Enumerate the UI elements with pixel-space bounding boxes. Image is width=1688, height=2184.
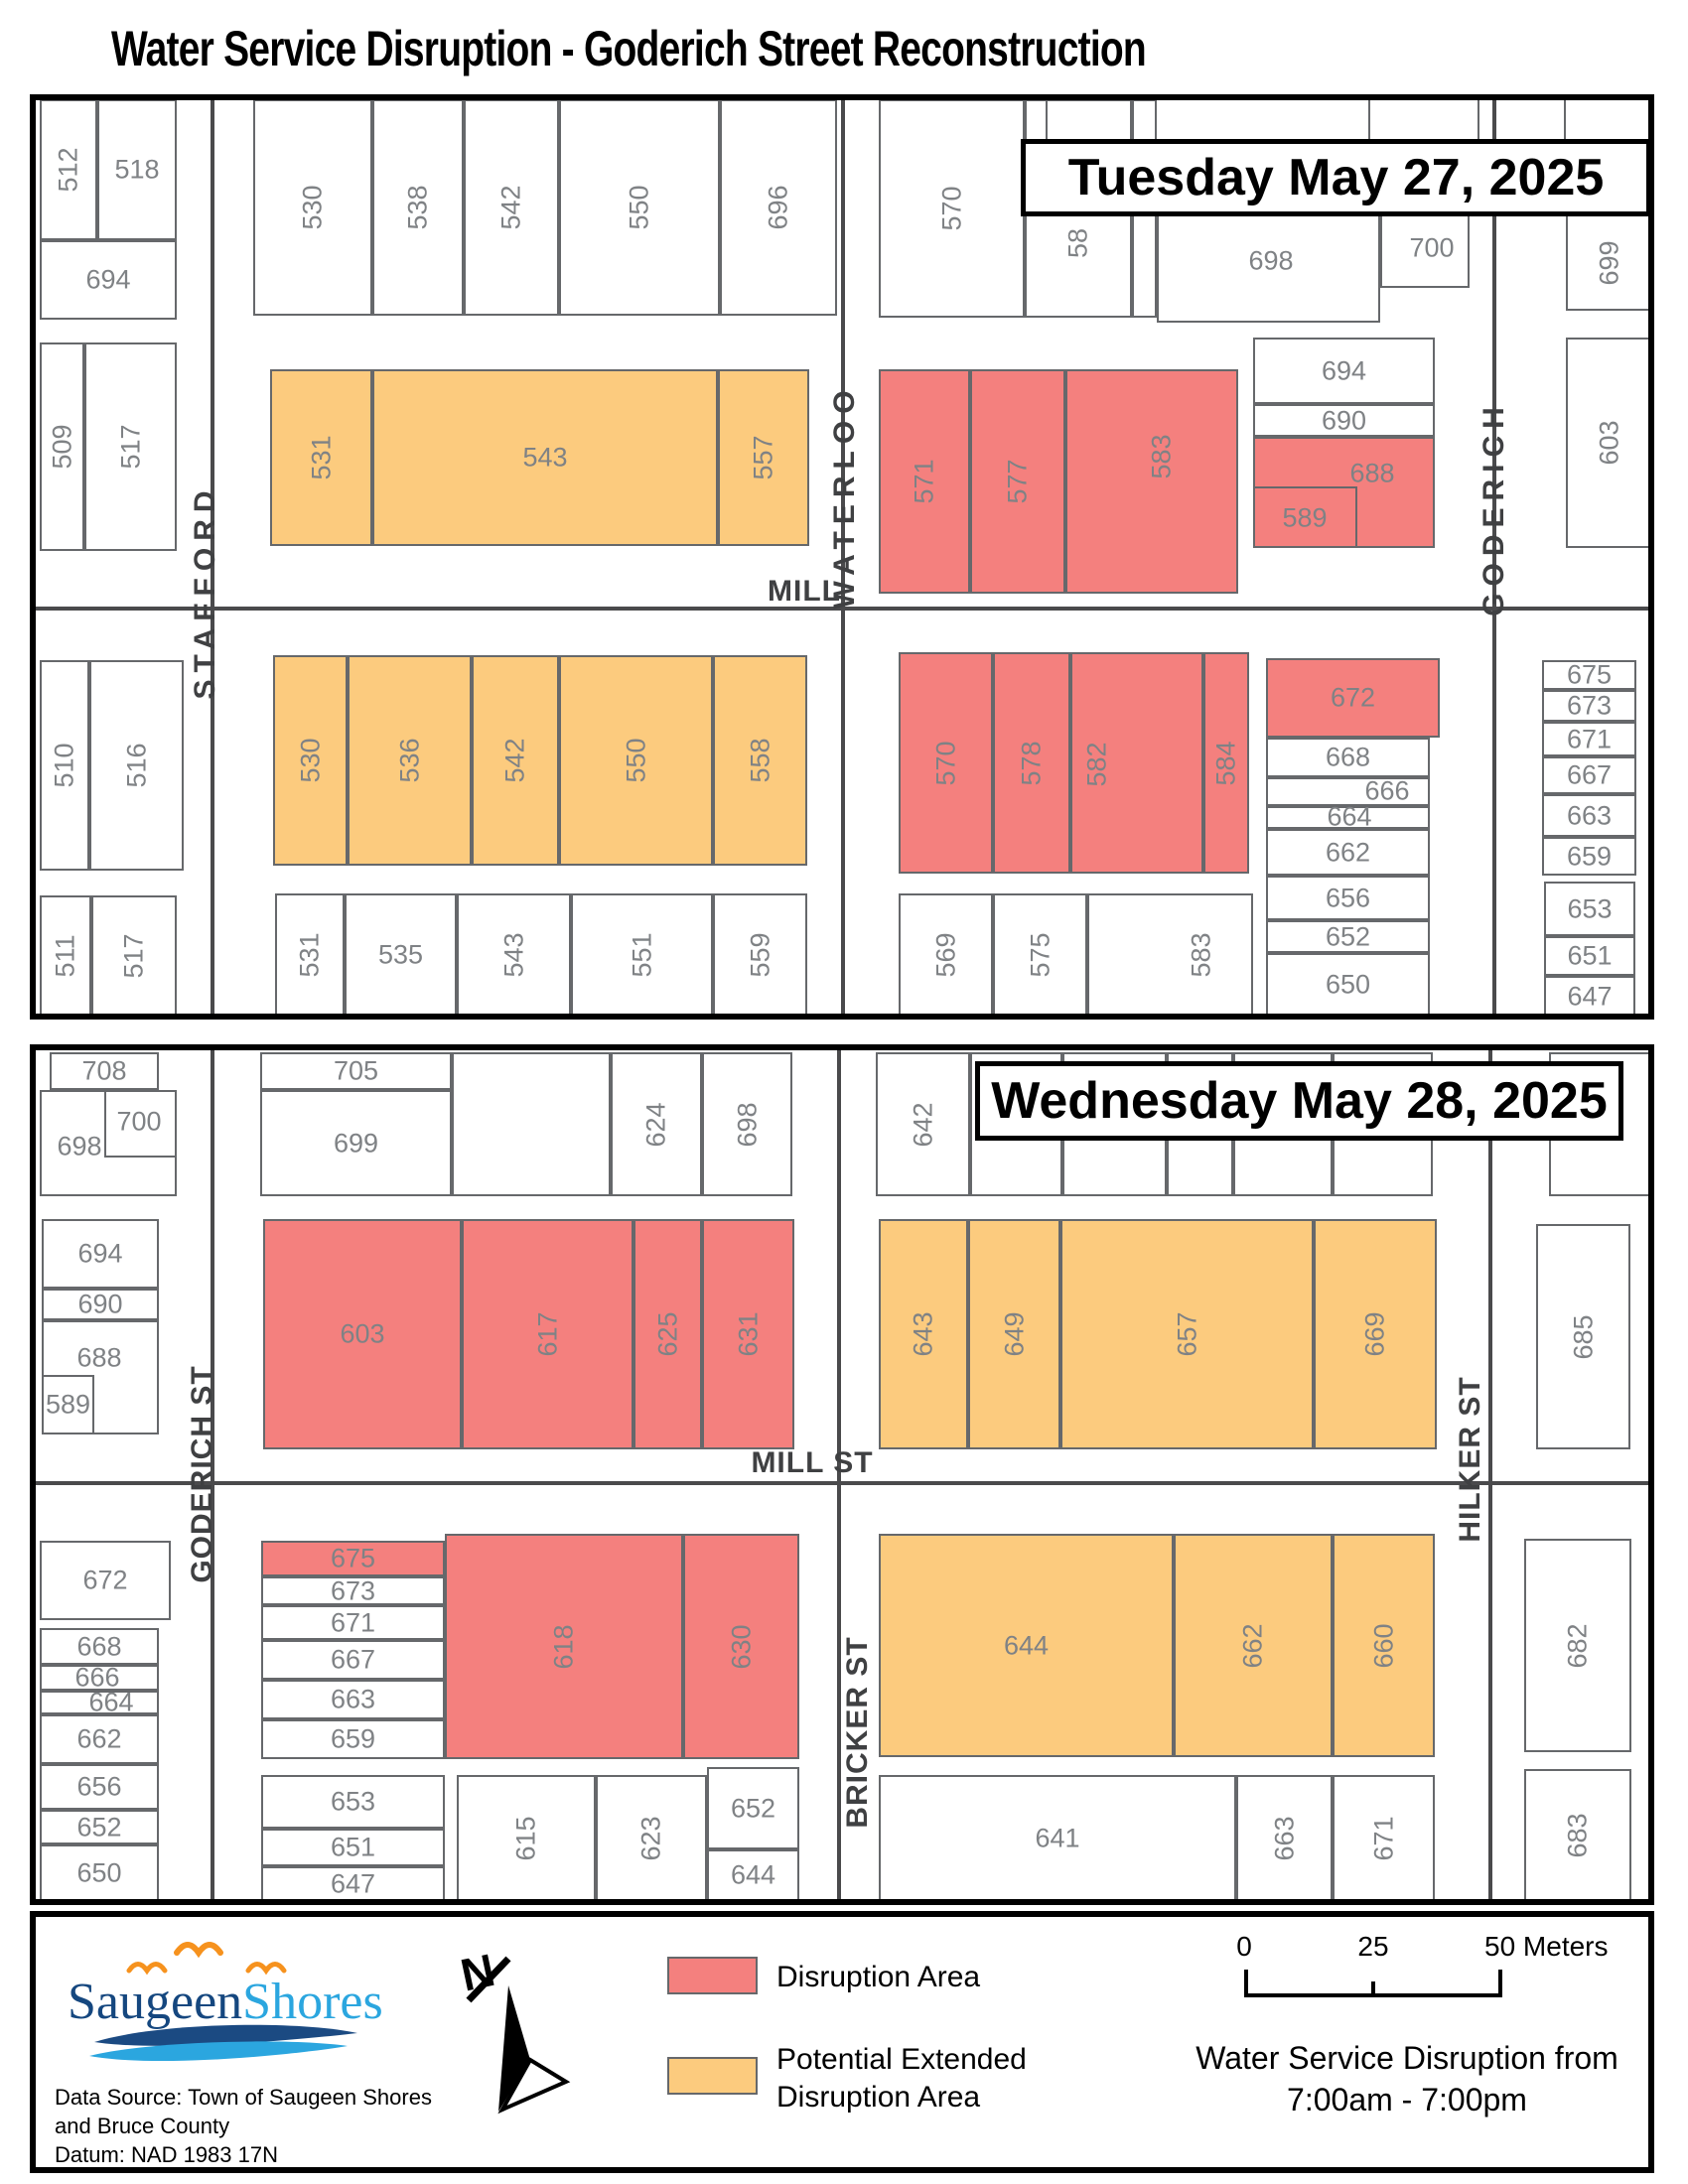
parcel-label: 58: [1063, 228, 1094, 258]
scale-max: 50 Meters: [1484, 1931, 1609, 1963]
parcel-label: 589: [1282, 503, 1327, 534]
extended-swatch: [667, 2057, 758, 2095]
parcel-label: 698: [732, 1102, 763, 1147]
parcel-label: 530: [295, 738, 326, 782]
parcel-label: 694: [77, 1239, 122, 1270]
parcel-label: 652: [76, 1812, 121, 1843]
parcel-label: 542: [496, 185, 527, 229]
parcel-label: 538: [403, 185, 434, 229]
parcel-label: 550: [621, 738, 651, 782]
parcel-label: 657: [1172, 1311, 1202, 1356]
parcel-boundary-stub: [1155, 94, 1157, 139]
parcel-label: 708: [81, 1056, 126, 1087]
parcel-label: 699: [334, 1128, 378, 1159]
datum-line: Datum: NAD 1983 17N: [55, 2140, 432, 2169]
parcel-label: 578: [1017, 741, 1048, 785]
parcel-label: 511: [51, 934, 81, 977]
parcel-label: 644: [731, 1860, 775, 1891]
parcel-label: 659: [1567, 841, 1612, 872]
parcel-label: 577: [1003, 459, 1034, 503]
parcel-label: 652: [731, 1793, 775, 1824]
date-banner: Tuesday May 27, 2025: [1021, 139, 1651, 216]
parcel-label: 690: [1322, 405, 1366, 436]
parcel-label: 696: [764, 185, 794, 229]
scale-tick: [1498, 1970, 1502, 1997]
parcel-583: [1087, 893, 1253, 1017]
parcel-label: 671: [1567, 724, 1612, 754]
parcel-label: 700: [1409, 233, 1454, 264]
service-line1: Water Service Disruption from: [1159, 2037, 1655, 2079]
parcel-label: 662: [1238, 1623, 1269, 1668]
bird-icon: [129, 1965, 165, 1972]
parcel-label: 631: [733, 1311, 764, 1356]
parcel-label: 682: [1563, 1623, 1594, 1668]
parcel-label: 531: [295, 932, 326, 977]
parcel-label: 667: [1567, 760, 1612, 791]
parcel-label: 668: [1326, 743, 1370, 773]
parcel-label: 652: [1326, 921, 1370, 952]
parcel-label: 603: [1595, 420, 1625, 465]
parcel-label: 683: [1563, 1813, 1594, 1857]
parcel-label: 663: [1269, 1816, 1300, 1860]
disruption-label: Disruption Area: [776, 1961, 980, 1994]
disruption-swatch: [667, 1957, 758, 1994]
parcel-label: 570: [936, 186, 967, 230]
page-title: Water Service Disruption - Goderich Stre…: [111, 20, 1146, 77]
parcel-boundary-stub: [1477, 94, 1479, 139]
parcel-label: 551: [627, 932, 657, 977]
scale-mid: 25: [1348, 1931, 1398, 1963]
parcel-label: 624: [641, 1102, 672, 1147]
extended-label-line2: Disruption Area: [776, 2079, 1027, 2116]
street-label-hilker-st: HILKER ST: [1454, 1376, 1487, 1542]
street-line: [1488, 1044, 1492, 1905]
parcel-label: 589: [46, 1390, 90, 1421]
parcel-boundary-stub: [1564, 94, 1566, 139]
parcel-boundary-stub: [1368, 94, 1370, 139]
scale-zero: 0: [1229, 1931, 1259, 1963]
parcel-label: 656: [76, 1772, 121, 1803]
parcel-label: 675: [331, 1544, 375, 1574]
date-banner: Wednesday May 28, 2025: [975, 1061, 1623, 1141]
parcel-label: 685: [1568, 1314, 1599, 1359]
bird-icon: [177, 1945, 220, 1953]
parcel-label: 536: [394, 738, 425, 782]
parcel-label: 672: [82, 1566, 127, 1596]
parcel-label: 659: [331, 1724, 375, 1755]
north-arrow-icon: N: [447, 1941, 606, 2124]
data-source-note: Data Source: Town of Saugeen Shores and …: [55, 2083, 432, 2169]
parcel-label: 510: [50, 743, 80, 787]
parcel-label: 618: [549, 1624, 580, 1669]
parcel-label: 671: [1368, 1816, 1399, 1860]
parcel-label: 663: [331, 1685, 375, 1715]
street-label-goderich: GODERICH: [1477, 400, 1511, 616]
parcel-label: 694: [1322, 355, 1366, 386]
parcel-label: 570: [930, 741, 961, 785]
parcel-label: 705: [334, 1056, 378, 1087]
parcel-label: 630: [726, 1624, 757, 1669]
parcel-label: 583: [1187, 932, 1217, 977]
parcel-label: 584: [1211, 741, 1242, 785]
data-source-line: Data Source: Town of Saugeen Shores: [55, 2083, 432, 2112]
extended-label-line1: Potential Extended: [776, 2041, 1027, 2079]
parcel-label: 660: [1368, 1623, 1399, 1668]
street-label-bricker-st: BRICKER ST: [841, 1636, 875, 1828]
parcel-label: 569: [930, 932, 961, 977]
saugeen-shores-logo: SaugeenShores: [60, 1931, 397, 2080]
service-line2: 7:00am - 7:00pm: [1159, 2079, 1655, 2120]
parcel-label: 650: [76, 1857, 121, 1888]
parcel-label: 663: [1567, 800, 1612, 831]
parcel-label: 698: [1248, 246, 1293, 277]
parcel-label: 662: [76, 1724, 121, 1755]
parcel-label: 543: [498, 932, 529, 977]
parcel-label: 559: [745, 932, 775, 977]
logo-text: SaugeenShores: [68, 1974, 383, 2030]
scale-tick: [1244, 1970, 1248, 1997]
parcel-label: 650: [1326, 970, 1370, 1001]
parcel-label: 667: [331, 1645, 375, 1676]
parcel-label: 575: [1025, 932, 1055, 977]
map-document: Water Service Disruption - Goderich Stre…: [0, 0, 1688, 2184]
parcel-label: 651: [1567, 941, 1612, 972]
parcel-label: 688: [1349, 459, 1394, 489]
bird-icon: [248, 1965, 284, 1972]
parcel-unlabeled: [452, 1052, 611, 1196]
parcel-label: 699: [1595, 240, 1625, 285]
parcel-label: 647: [331, 1868, 375, 1899]
parcel-label: 583: [1147, 434, 1178, 478]
parcel-label: 641: [1035, 1823, 1079, 1853]
parcel-label: 557: [749, 435, 779, 479]
parcel-label: 653: [331, 1787, 375, 1818]
parcel-label: 625: [652, 1311, 683, 1356]
parcel-label: 644: [1004, 1630, 1049, 1661]
parcel-label: 518: [114, 155, 159, 186]
parcel-label: 694: [85, 265, 130, 296]
street-label-goderich-st: GODERICH ST: [186, 1365, 219, 1582]
parcel-label: 664: [88, 1688, 133, 1718]
parcel-label: 656: [1326, 883, 1370, 913]
parcel-label: 517: [119, 933, 150, 978]
parcel-label: 700: [116, 1107, 161, 1138]
parcel-label: 535: [378, 940, 423, 971]
parcel-boundary-stub: [1132, 94, 1134, 139]
parcel-label: 647: [1567, 981, 1612, 1012]
parcel-label: 516: [121, 743, 152, 787]
parcel-label: 623: [636, 1816, 667, 1860]
parcel-label: 668: [76, 1631, 121, 1662]
parcel-label: 512: [54, 147, 84, 192]
parcel-label: 617: [532, 1311, 563, 1356]
street-label-mill-st: MILL ST: [751, 1446, 873, 1480]
parcel-label: 531: [306, 435, 337, 479]
extended-label: Potential Extended Disruption Area: [776, 2041, 1027, 2116]
parcel-label: 672: [1331, 683, 1375, 714]
parcel-label: 582: [1082, 742, 1113, 786]
parcel-label: 664: [1327, 802, 1371, 833]
parcel-label: 651: [331, 1833, 375, 1863]
parcel-label: 615: [511, 1816, 542, 1860]
parcel-label: 509: [47, 424, 77, 469]
parcel-label: 649: [999, 1311, 1030, 1356]
parcel-label: 642: [908, 1102, 938, 1147]
parcel-label: 542: [500, 738, 531, 782]
street-line: [30, 1481, 1654, 1485]
parcel-label: 688: [76, 1343, 121, 1374]
parcel-label: 671: [331, 1607, 375, 1638]
parcel-label: 643: [909, 1311, 939, 1356]
scale-tick: [1371, 1981, 1375, 1997]
street-label-stafford: STAFFORD: [189, 483, 222, 699]
data-source-line: and Bruce County: [55, 2112, 432, 2140]
parcel-boundary-stub: [1046, 94, 1048, 139]
parcel-label: 603: [340, 1319, 384, 1350]
parcel-label: 690: [77, 1290, 122, 1320]
parcel-label: 673: [331, 1575, 375, 1606]
parcel-583: [1065, 369, 1238, 594]
parcel-label: 675: [1567, 660, 1612, 691]
parcel-label: 558: [745, 738, 775, 782]
parcel-label: 698: [57, 1132, 101, 1162]
parcel-label: 530: [298, 185, 329, 229]
parcel-label: 550: [625, 185, 655, 229]
parcel-label: 543: [522, 443, 567, 474]
parcel-label: 653: [1567, 893, 1612, 924]
parcel-label: 673: [1567, 691, 1612, 722]
service-disruption-note: Water Service Disruption from 7:00am - 7…: [1159, 2037, 1655, 2120]
parcel-label: 571: [910, 459, 940, 503]
parcel-label: 662: [1326, 837, 1370, 868]
street-label-mill: MILL: [768, 575, 841, 609]
parcel-label: 669: [1360, 1311, 1391, 1356]
parcel-label: 517: [115, 424, 146, 469]
